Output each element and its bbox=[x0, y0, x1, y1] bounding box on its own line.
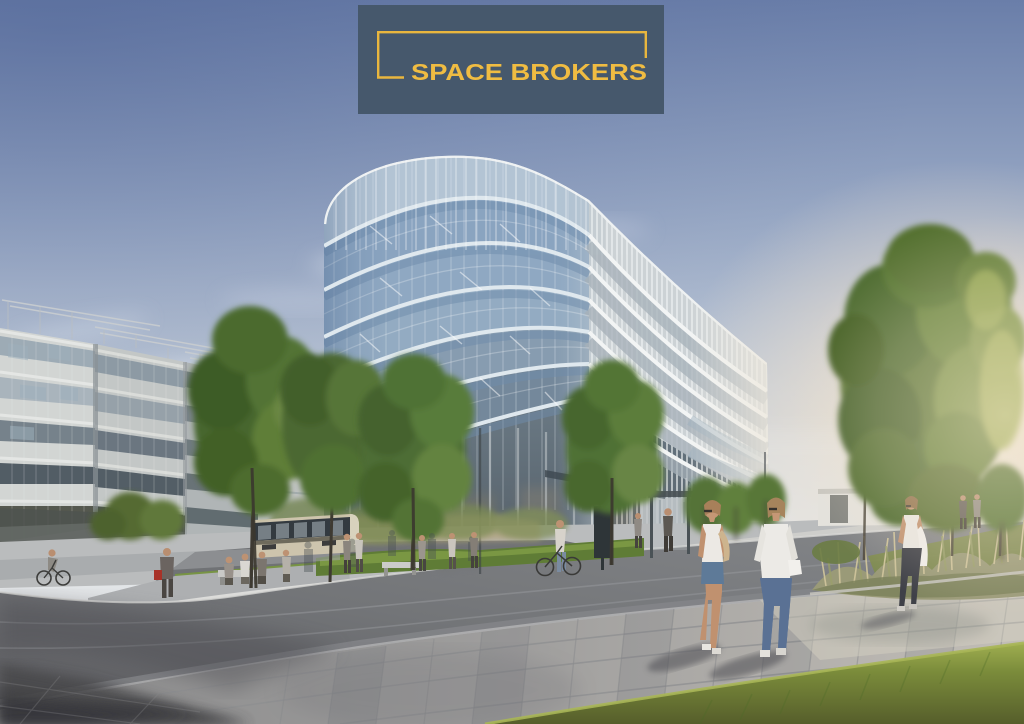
svg-text:SPACE BROKERS: SPACE BROKERS bbox=[411, 59, 647, 85]
